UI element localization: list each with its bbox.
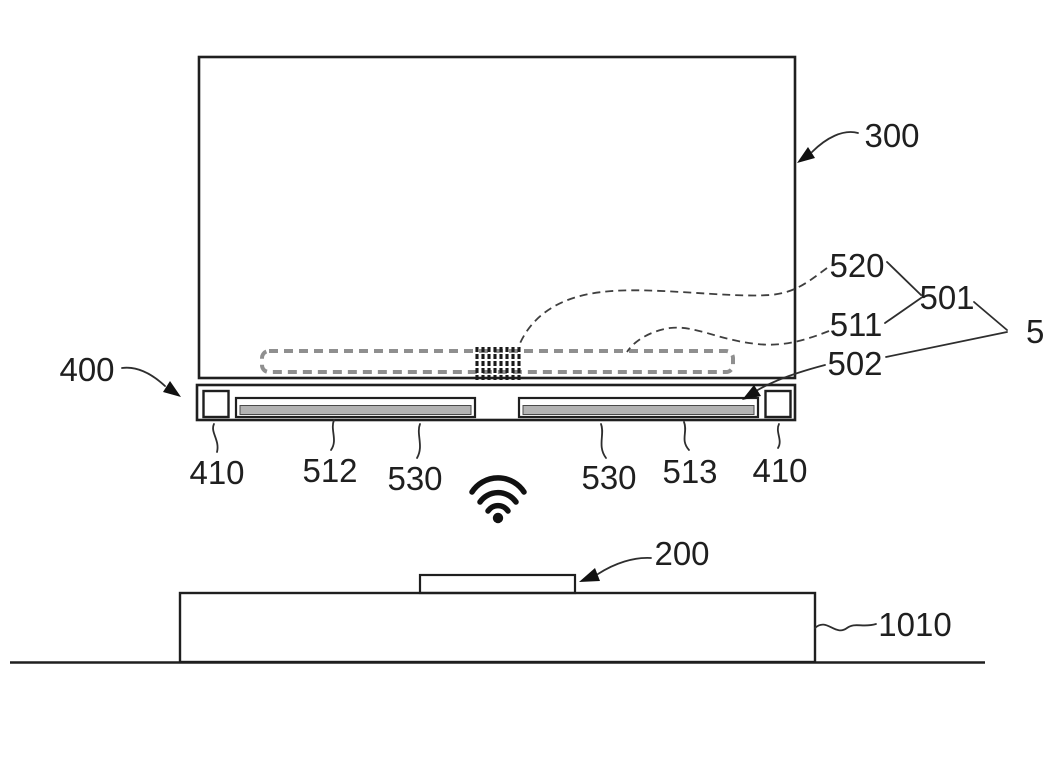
- leader-520-dashed: [518, 268, 827, 348]
- leader-410-left: [213, 424, 218, 452]
- wifi-signal-icon: [472, 478, 524, 523]
- patent-figure-page: 300 400 520 501 511 502 5 410 512 530 53…: [0, 0, 1044, 783]
- arrowhead-400: [163, 381, 181, 397]
- leader-530-right: [601, 424, 606, 458]
- leader-410-right: [778, 424, 780, 448]
- ref-label-400: 400: [59, 351, 114, 388]
- console-outline: [180, 593, 815, 662]
- ref-label-200: 200: [654, 535, 709, 572]
- leader-300: [812, 132, 858, 152]
- bracket-line-520-501: [887, 262, 921, 295]
- ref-label-530-left: 530: [387, 460, 442, 497]
- ref-label-5: 5: [1026, 313, 1044, 350]
- ref-label-530-right: 530: [581, 459, 636, 496]
- speaker-bar-left-grille: [240, 406, 471, 415]
- leader-513: [684, 422, 689, 450]
- leader-512: [331, 420, 334, 450]
- ref-label-501: 501: [919, 279, 974, 316]
- ref-label-300: 300: [864, 117, 919, 154]
- antenna-strip-dashed-outline: [262, 351, 733, 372]
- leader-200: [598, 558, 651, 574]
- arrowhead-200: [579, 568, 600, 582]
- ref-label-513: 513: [662, 453, 717, 490]
- leader-530-left: [417, 424, 420, 458]
- arrowhead-300: [797, 147, 815, 163]
- ref-label-410-left: 410: [189, 454, 244, 491]
- display-panel-outline: [199, 57, 795, 378]
- ref-label-511: 511: [830, 306, 883, 343]
- ref-label-512: 512: [302, 452, 357, 489]
- bracket-line-511-501: [885, 298, 921, 323]
- module-200-outline: [420, 575, 575, 593]
- bracket-right-outline: [766, 391, 791, 417]
- bracket-left-outline: [204, 391, 229, 417]
- leader-511-dashed: [627, 328, 829, 352]
- leader-1010: [815, 624, 876, 630]
- bracket-line-502-5: [886, 332, 1007, 357]
- bracket-line-501-5: [974, 302, 1007, 330]
- leader-400: [122, 368, 165, 386]
- ref-label-520: 520: [829, 247, 884, 284]
- patent-figure-canvas: 300 400 520 501 511 502 5 410 512 530 53…: [0, 0, 1044, 783]
- ref-label-1010: 1010: [878, 606, 951, 643]
- speaker-bar-right-grille: [523, 406, 754, 415]
- ref-label-502: 502: [827, 345, 882, 382]
- ref-label-410-right: 410: [752, 452, 807, 489]
